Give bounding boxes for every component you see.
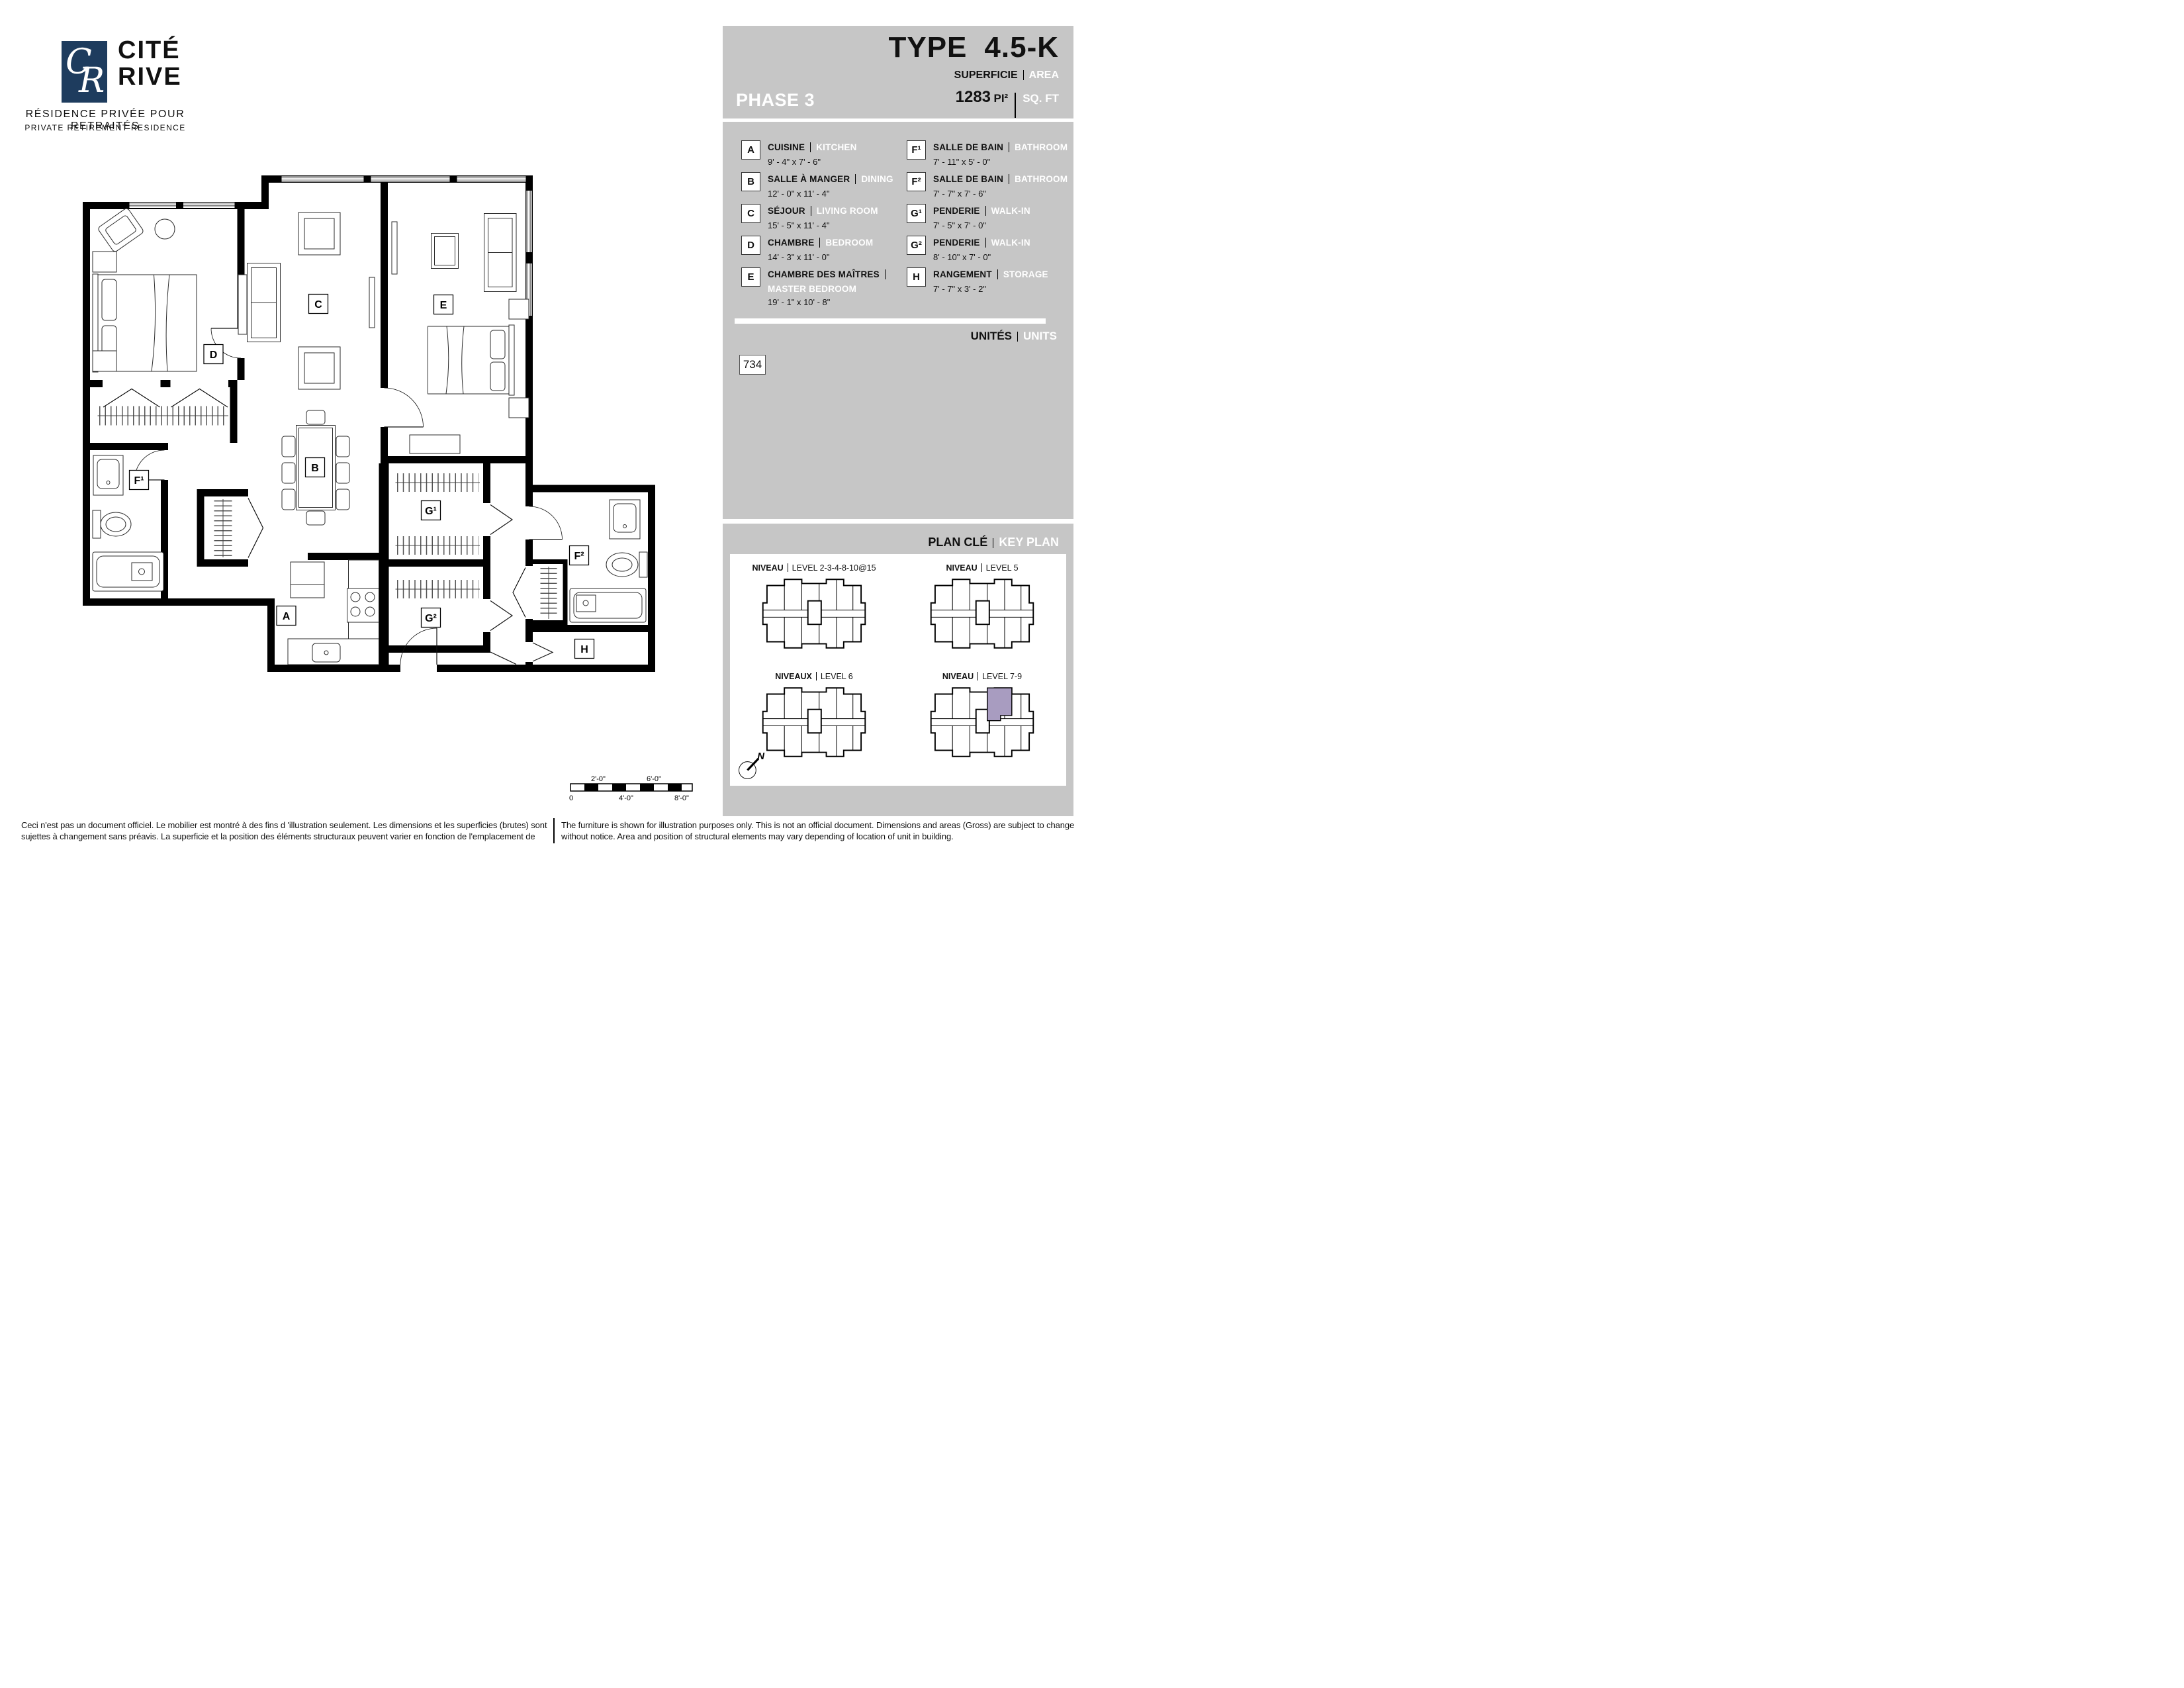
legend-e-fr: CHAMBRE DES MAÎTRES xyxy=(768,269,880,279)
footer-divider xyxy=(553,818,555,843)
north-letter: N xyxy=(757,751,764,762)
keyplan-drawing-1 xyxy=(758,575,870,652)
door-walkin-g2 xyxy=(490,601,512,631)
unit-number-badge: 734 xyxy=(739,355,766,375)
label-bath-f1: F¹ xyxy=(134,475,144,487)
blanket-e xyxy=(446,326,464,394)
scale-label-8ft: 8'-0" xyxy=(674,794,689,802)
scale-label-0: 0 xyxy=(569,794,573,802)
legend-f1-fr: SALLE DE BAIN xyxy=(933,142,1003,152)
keyplan-title: PLAN CLÉKEY PLAN xyxy=(928,536,1059,549)
floor-plan: A B C D E F¹ F² G¹ G² H xyxy=(83,175,655,685)
brand-name: CITÉ RIVE xyxy=(118,37,182,90)
legend-row-a: CUISINEKITCHEN 9' - 4" x 7' - 6" xyxy=(768,142,857,167)
tagline-en: PRIVATE RETIREMENT RESIDENCE xyxy=(4,123,206,132)
legend-g2-en: WALK-IN xyxy=(991,238,1030,248)
legend-badge-a: A xyxy=(741,140,760,160)
kp4-en: LEVEL 7-9 xyxy=(982,672,1022,681)
unit-type-title: TYPE4.5-K xyxy=(888,31,1059,64)
legend-row-h: RANGEMENTSTORAGE 7' - 7" x 3' - 2" xyxy=(933,269,1048,294)
logo-monogram-box: C R xyxy=(62,41,107,103)
legend-row-f2: SALLE DE BAINBATHROOM 7' - 7" x 7' - 6" xyxy=(933,173,1068,199)
pillow-e1 xyxy=(490,330,505,359)
dresser-d xyxy=(238,275,247,334)
brand-line2: RIVE xyxy=(118,64,182,90)
toilet-tank-f2 xyxy=(639,552,647,577)
scale-bar: 2'-0" 6'-0" 0 4'-0" 8'-0" xyxy=(567,773,699,804)
keyplan-cell-4: NIVEAULEVEL 7-9 xyxy=(898,672,1066,761)
door-closet-f2 xyxy=(513,568,525,618)
fridge xyxy=(291,562,324,598)
furniture-bedroom-d xyxy=(93,207,247,372)
keyplan-panel: PLAN CLÉKEY PLAN NIVEAULEVEL 2-3-4-8-10@… xyxy=(723,524,1073,816)
area-line: 1283 PI²SQ. FT xyxy=(956,88,1059,118)
label-bath-f2: F² xyxy=(574,551,584,562)
dining-chair xyxy=(282,436,295,457)
legend-badge-f2: F² xyxy=(907,172,926,191)
tv-e xyxy=(392,222,397,274)
brand-line1: CITÉ xyxy=(118,37,182,64)
stove xyxy=(347,588,379,622)
furniture-master-e xyxy=(392,214,529,454)
legend-badge-d: D xyxy=(741,236,760,255)
keyplan-cell-1: NIVEAULEVEL 2-3-4-8-10@15 xyxy=(730,563,898,652)
bifold-closet-d-2 xyxy=(171,389,228,408)
legend-panel: A CUISINEKITCHEN 9' - 4" x 7' - 6" B SAL… xyxy=(723,122,1073,519)
legend-badge-b: B xyxy=(741,172,760,191)
highlighted-unit xyxy=(987,688,1012,720)
legend-c-en: LIVING ROOM xyxy=(817,206,878,216)
legend-a-fr: CUISINE xyxy=(768,142,805,152)
disclaimer-fr: Ceci n'est pas un document officiel. Le … xyxy=(21,820,547,844)
label-dining-b: B xyxy=(311,463,319,474)
keyplan-cell-2: NIVEAULEVEL 5 xyxy=(898,563,1066,652)
superficie-line: SUPERFICIEAREA xyxy=(954,70,1059,81)
legend-row-b: SALLE À MANGERDINING 12' - 0" x 11' - 4" xyxy=(768,173,893,199)
legend-f2-fr: SALLE DE BAIN xyxy=(933,174,1003,184)
nightstand-e1 xyxy=(509,299,529,319)
bed-headboard-e xyxy=(509,325,514,395)
door-vestibule xyxy=(490,652,516,665)
dresser-e xyxy=(410,435,460,453)
legend-g1-dims: 7' - 5" x 7' - 0" xyxy=(933,220,1030,230)
dining-chair xyxy=(336,463,349,483)
units-en: UNITS xyxy=(1023,330,1057,342)
dining-chair xyxy=(306,511,325,525)
keyplan-label-4: NIVEAULEVEL 7-9 xyxy=(898,672,1066,681)
label-walkin-g2: G² xyxy=(425,613,437,624)
side-table-d xyxy=(155,219,175,239)
pillow-e2 xyxy=(490,362,505,391)
legend-row-f1: SALLE DE BAINBATHROOM 7' - 11" x 5' - 0" xyxy=(933,142,1068,167)
window-bedroom-d-2 xyxy=(183,203,236,209)
area-value: 1283 xyxy=(956,88,991,106)
scale-label-2ft: 2'-0" xyxy=(591,775,606,783)
legend-row-e: CHAMBRE DES MAÎTRES MASTER BEDROOM 19' -… xyxy=(768,269,891,307)
legend-b-fr: SALLE À MANGER xyxy=(768,174,850,184)
scale-label-6ft: 6'-0" xyxy=(647,775,661,783)
tv-c xyxy=(369,277,375,328)
bifold-closet-d-1 xyxy=(103,389,160,408)
kp3-en: LEVEL 6 xyxy=(821,672,853,681)
legend-h-fr: RANGEMENT xyxy=(933,269,992,279)
north-arrow: N xyxy=(735,751,766,782)
legend-badge-c: C xyxy=(741,204,760,223)
label-living-c: C xyxy=(314,299,322,310)
label-master-e: E xyxy=(440,300,447,311)
legend-h-en: STORAGE xyxy=(1003,269,1048,279)
disclaimer-en: The furniture is shown for illustration … xyxy=(561,820,1077,842)
legend-a-en: KITCHEN xyxy=(816,142,856,152)
label-walkin-g1: G¹ xyxy=(425,506,437,517)
door-storage-h xyxy=(533,643,553,661)
legend-row-g1: PENDERIEWALK-IN 7' - 5" x 7' - 0" xyxy=(933,205,1030,230)
dining-chair xyxy=(282,463,295,483)
logo-monogram-r: R xyxy=(79,61,105,101)
keyplan-drawing-4-highlighted xyxy=(926,684,1038,761)
keyplan-title-fr: PLAN CLÉ xyxy=(928,536,987,549)
units-heading: UNITÉSUNITS xyxy=(971,330,1057,343)
area-unit-en: SQ. FT xyxy=(1023,92,1059,105)
phase-label: PHASE 3 xyxy=(736,90,815,111)
kp2-en: LEVEL 5 xyxy=(986,563,1019,573)
window-top-2 xyxy=(371,176,450,182)
legend-f1-dims: 7' - 11" x 5' - 0" xyxy=(933,157,1068,167)
keyplan-label-1: NIVEAULEVEL 2-3-4-8-10@15 xyxy=(730,563,898,573)
label-bedroom-d: D xyxy=(210,350,218,361)
legend-badge-e: E xyxy=(741,267,760,287)
door-linen-closet xyxy=(248,498,263,558)
kp3-fr: NIVEAUX xyxy=(775,672,812,681)
window-master-1 xyxy=(526,191,532,253)
area-unit-fr: PI² xyxy=(993,92,1008,105)
fixtures-kitchen-a xyxy=(288,560,379,665)
legend-e-dims: 19' - 1" x 10' - 8" xyxy=(768,297,891,307)
dining-chair xyxy=(306,410,325,424)
dining-chair xyxy=(336,436,349,457)
header-panel: PHASE 3 TYPE4.5-K SUPERFICIEAREA 1283 PI… xyxy=(723,26,1073,118)
window-top-1 xyxy=(281,176,364,182)
legend-f1-en: BATHROOM xyxy=(1015,142,1068,152)
keyplan-label-3: NIVEAUXLEVEL 6 xyxy=(730,672,898,681)
superficie-en: AREA xyxy=(1029,70,1059,81)
keyplan-inner: NIVEAULEVEL 2-3-4-8-10@15 NIVEAULEVEL 5 … xyxy=(730,554,1066,786)
keyplan-cell-3: NIVEAUXLEVEL 6 xyxy=(730,672,898,761)
superficie-fr: SUPERFICIE xyxy=(954,70,1018,81)
dining-chair xyxy=(282,489,295,510)
window-bedroom-d-1 xyxy=(129,203,177,209)
legend-divider-bar xyxy=(735,318,1046,324)
legend-row-d: CHAMBREBEDROOM 14' - 3" x 11' - 0" xyxy=(768,237,873,262)
keyplan-label-2: NIVEAULEVEL 5 xyxy=(898,563,1066,573)
legend-g2-fr: PENDERIE xyxy=(933,238,980,248)
legend-row-c: SÉJOURLIVING ROOM 15' - 5" x 11' - 4" xyxy=(768,205,878,230)
type-value: 4.5-K xyxy=(984,31,1059,64)
kp4-fr: NIVEAU xyxy=(942,672,974,681)
type-word: TYPE xyxy=(888,31,967,64)
keyplan-title-en: KEY PLAN xyxy=(999,536,1059,549)
legend-d-en: BEDROOM xyxy=(825,238,873,248)
floorplan-sheet: C R CITÉ RIVE RÉSIDENCE PRIVÉE POUR RETR… xyxy=(0,0,1092,844)
nightstand-d1 xyxy=(93,252,116,272)
toilet-tank-f1 xyxy=(93,510,101,538)
legend-g2-dims: 8' - 10" x 7' - 0" xyxy=(933,252,1030,262)
legend-f2-dims: 7' - 7" x 7' - 6" xyxy=(933,189,1068,199)
window-top-3 xyxy=(457,176,526,182)
nightstand-e2 xyxy=(509,398,529,418)
legend-c-fr: SÉJOUR xyxy=(768,206,805,216)
legend-e-en: MASTER BEDROOM xyxy=(768,284,891,294)
legend-g1-en: WALK-IN xyxy=(991,206,1030,216)
legend-c-dims: 15' - 5" x 11' - 4" xyxy=(768,220,878,230)
kp1-en: LEVEL 2-3-4-8-10@15 xyxy=(792,563,876,573)
label-storage-h: H xyxy=(580,644,588,655)
legend-h-dims: 7' - 7" x 3' - 2" xyxy=(933,284,1048,294)
legend-row-g2: PENDERIEWALK-IN 8' - 10" x 7' - 0" xyxy=(933,237,1030,262)
pillow-d1 xyxy=(102,279,116,320)
legend-d-dims: 14' - 3" x 11' - 0" xyxy=(768,252,873,262)
legend-badge-g1: G¹ xyxy=(907,204,926,223)
units-fr: UNITÉS xyxy=(971,330,1012,342)
keyplan-drawing-3 xyxy=(758,684,870,761)
legend-f2-en: BATHROOM xyxy=(1015,174,1068,184)
nightstand-d2 xyxy=(93,351,116,371)
door-walkin-g1 xyxy=(490,505,512,535)
scale-label-4ft: 4'-0" xyxy=(619,794,633,802)
label-kitchen-a: A xyxy=(283,611,291,622)
legend-badge-f1: F¹ xyxy=(907,140,926,160)
kp1-fr: NIVEAU xyxy=(752,563,783,573)
legend-b-dims: 12' - 0" x 11' - 4" xyxy=(768,189,893,199)
keyplan-drawing-2 xyxy=(926,575,1038,652)
kp2-fr: NIVEAU xyxy=(946,563,977,573)
legend-badge-h: H xyxy=(907,267,926,287)
legend-b-en: DINING xyxy=(861,174,893,184)
legend-g1-fr: PENDERIE xyxy=(933,206,980,216)
legend-badge-g2: G² xyxy=(907,236,926,255)
dining-chair xyxy=(336,489,349,510)
legend-d-fr: CHAMBRE xyxy=(768,238,814,248)
legend-a-dims: 9' - 4" x 7' - 6" xyxy=(768,157,857,167)
fixtures-bathroom-f1 xyxy=(93,455,163,591)
